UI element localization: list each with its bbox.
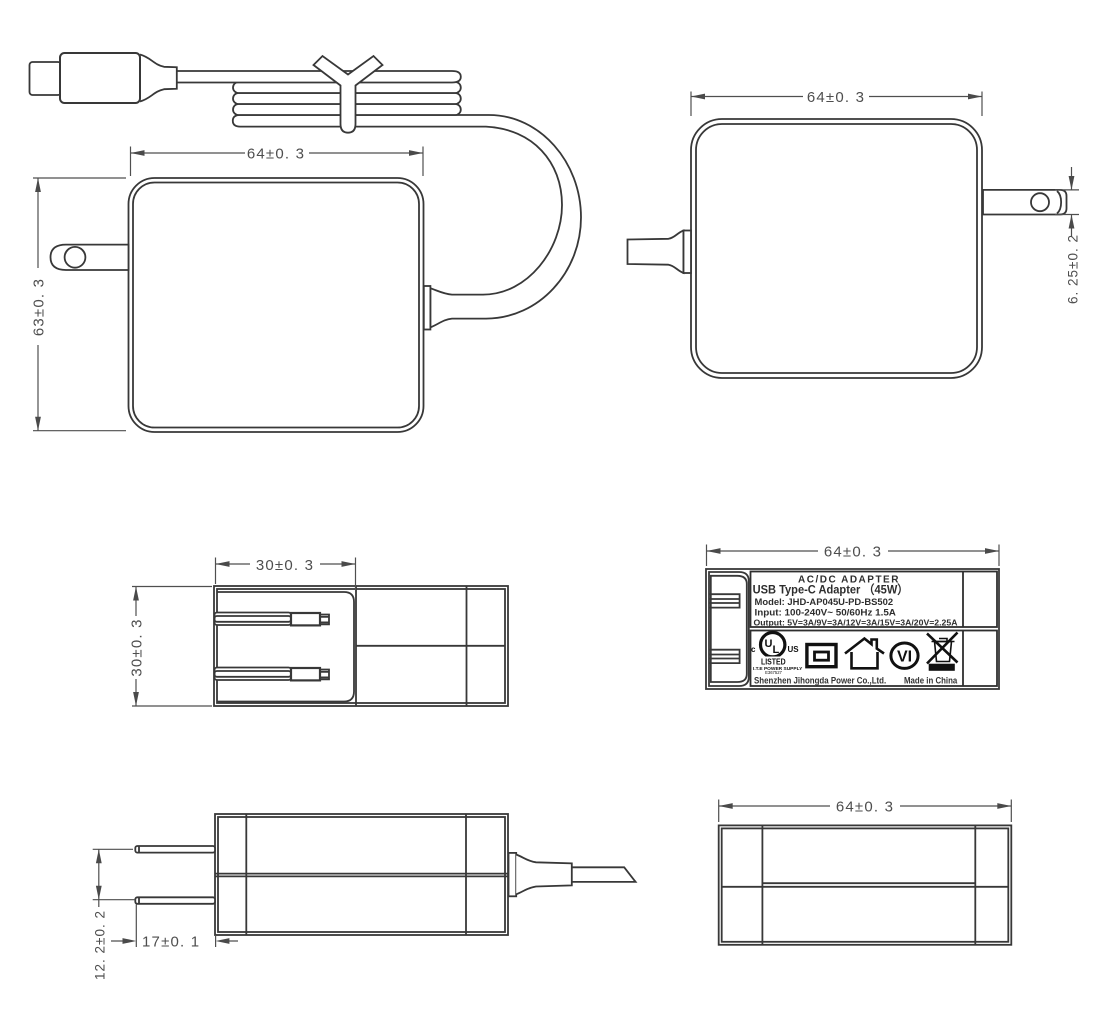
svg-text:USB Type-C Adapter （45W）: USB Type-C Adapter （45W） — [753, 582, 909, 597]
svg-text:17±0. 1: 17±0. 1 — [142, 934, 200, 951]
svg-text:6. 25±0. 2: 6. 25±0. 2 — [1066, 234, 1081, 304]
svg-text:Shenzhen Jihongda Power Co.,Lt: Shenzhen Jihongda Power Co.,Ltd. — [754, 676, 886, 686]
svg-text:LISTED: LISTED — [761, 658, 786, 667]
svg-text:US: US — [788, 645, 800, 654]
svg-text:64±0. 3: 64±0. 3 — [247, 146, 305, 163]
svg-text:L: L — [773, 644, 780, 656]
svg-text:c: c — [751, 645, 756, 654]
svg-text:Made in China: Made in China — [904, 676, 958, 686]
svg-text:Model: JHD-AP045U-PD-BS502: Model: JHD-AP045U-PD-BS502 — [755, 597, 894, 608]
svg-text:12. 2±0. 2: 12. 2±0. 2 — [93, 910, 108, 980]
svg-text:U: U — [765, 638, 773, 650]
svg-text:Output: 5V=3A/9V=3A/12V=3A/15V: Output: 5V=3A/9V=3A/12V=3A/15V=3A/20V=2.… — [754, 618, 958, 628]
svg-text:E367527: E367527 — [765, 670, 782, 675]
svg-text:VI: VI — [897, 649, 912, 666]
svg-text:63±0. 3: 63±0. 3 — [31, 278, 48, 336]
svg-text:64±0. 3: 64±0. 3 — [824, 544, 882, 561]
svg-text:64±0. 3: 64±0. 3 — [807, 89, 865, 106]
svg-text:64±0. 3: 64±0. 3 — [836, 799, 894, 816]
svg-text:30±0. 3: 30±0. 3 — [256, 557, 314, 574]
svg-text:30±0. 3: 30±0. 3 — [129, 618, 146, 676]
